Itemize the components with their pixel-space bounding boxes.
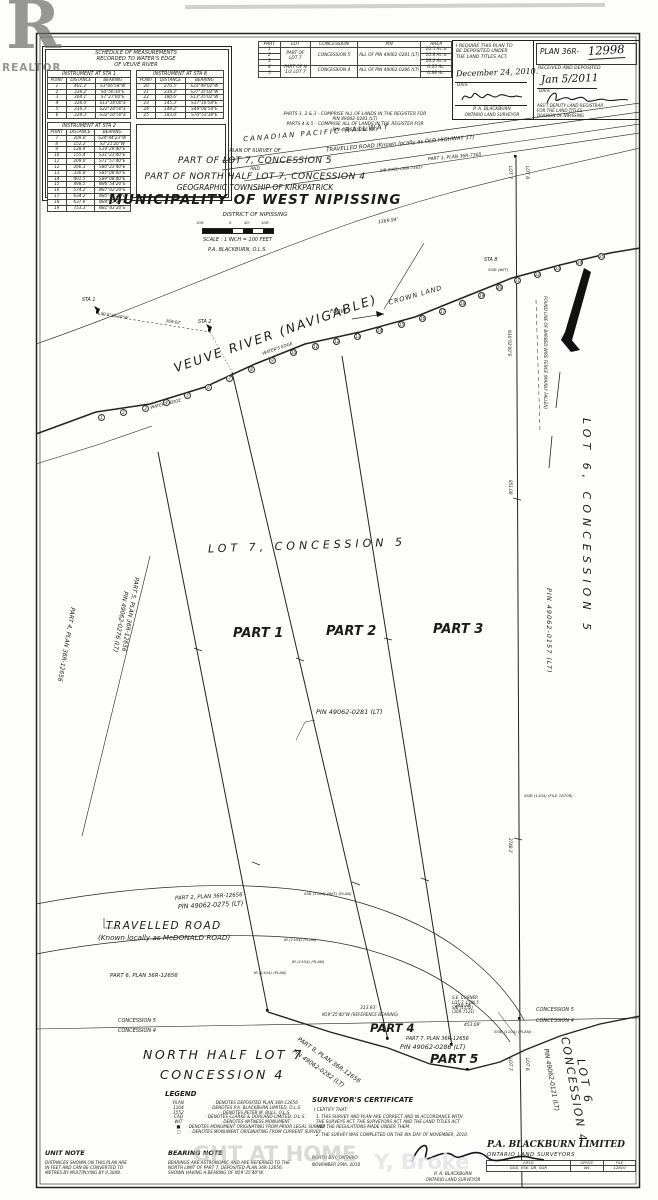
surveyor-signature (460, 88, 524, 104)
schedule-sta2-title: INSTRUMENT AT STA 2 (47, 122, 131, 129)
mcdonald-road-label: (Known locally as McDONALD ROAD) (98, 934, 230, 942)
title-line-1: PLAN OF SURVEY OF (55, 149, 455, 155)
part5-label: PART 5 (430, 1052, 478, 1067)
part2-label: PART 2 (326, 624, 376, 639)
part-pin: ALL OF PIN 49062-0286 (LT) (357, 65, 421, 77)
part-concession: CONCESSION 5 (311, 48, 358, 66)
table-cell: - DENOTES MONUMENT ORIGINATING FROM CURR… (185, 1130, 326, 1135)
table-cell: 25 (137, 112, 156, 118)
lot7-tick-label: LOT 7 (507, 166, 512, 179)
title-line-2: PART OF LOT 7, CONCESSION 5 (55, 156, 455, 167)
certificate-body: 1. THIS SURVEY AND PLAN ARE CORRECT AND … (316, 1115, 468, 1138)
scale-text: SCALE : 1 INCH = 100 FEET (175, 238, 300, 244)
part7-plan-label: PART 7, PLAN 36R-12656 (406, 1037, 469, 1043)
station-2-label: STA 2 (198, 320, 211, 326)
table-cell: □ (172, 1130, 185, 1135)
certificate-surveyor-role: ONTARIO LAND SURVEYOR (408, 1178, 498, 1183)
distance-label: 453.09' (464, 1023, 481, 1028)
title-surveyor-name: P.A. BLACKBURN, O.L.S. (175, 248, 300, 254)
part-concession: CONCESSION 4 (311, 65, 358, 77)
certificate-intro: I CERTIFY THAT: (314, 1108, 348, 1113)
station-8-label: STA 8 (484, 258, 497, 264)
rule (455, 105, 527, 106)
part-lot: PART OF LOT 7 (280, 48, 310, 66)
lot6-concession5-label: LOT 6, CONCESSION 5 (579, 418, 592, 635)
table-cell: S32°10'50"E (95, 112, 130, 118)
part-pin: ALL OF PIN 49062-0281 (LT) (357, 48, 421, 66)
pin-0281-label: PIN 49062-0281 (LT) (316, 709, 383, 717)
plan-number-handwritten: 12998 (588, 43, 625, 59)
table-cell: 12810 (603, 1166, 635, 1171)
part-area: 0.88 Ac. (421, 71, 452, 77)
plan-number-prefix: PLAN 36R- (540, 48, 579, 57)
received-deposited-label: RECEIVED AND DEPOSITED (538, 66, 601, 71)
monument-note: SSIB (1104) (PLAN) (494, 1030, 531, 1035)
scale-bar-segment (263, 229, 273, 233)
se-corner-line: (36R-7121) (452, 1010, 479, 1015)
certificate-line: AND THE REGULATIONS MADE UNDER THEM. (316, 1125, 468, 1130)
watermark-text: GHT AT HOME (193, 1142, 356, 1166)
waters-edge-line (36, 248, 640, 434)
bearing-label: N10°02'00"E (506, 330, 511, 356)
reference-bearing-label: N59°25'40"W (REFERENCE BEARING) (322, 1013, 398, 1018)
part-number: 5 (259, 71, 281, 77)
part6-plan-label: PART 6, PLAN 36R-12656 (110, 973, 178, 979)
table-row: 6324.3'S32°10'50"E (48, 112, 131, 118)
scale-bar-segment (203, 229, 233, 233)
table-cell: S70°51'38"E (185, 112, 223, 118)
table-row: □- DENOTES MONUMENT ORIGINATING FROM CUR… (172, 1130, 326, 1135)
part1-label: PART 1 (233, 626, 283, 641)
monument-note: IB (1104) (PLAN) (284, 938, 316, 943)
watermark-text: Y, Broke (374, 1150, 469, 1174)
station-1-label: STA 1 (82, 298, 95, 304)
north-half-lot7-label: NORTH HALF LOT 7 (143, 1048, 304, 1063)
fence-note: FOUND LINE OF BARBED WIRE FENCE (MAINLY … (542, 296, 547, 409)
surveyor-certificate-title: SURVEYOR'S CERTIFICATE (312, 1096, 413, 1104)
lot6-tick-label: LOT 6 (524, 166, 529, 179)
unit-note-title: UNIT NOTE (45, 1150, 85, 1158)
flow-label: FLOW (330, 309, 346, 316)
scale-bar-segment (243, 229, 253, 233)
realtor-logo-letter: R (6, 0, 61, 64)
registrar-signature (545, 90, 631, 106)
table-cell: 183.0' (156, 112, 185, 118)
municipality-title: MUNICIPALITY OF WEST NIPISSING (55, 193, 455, 209)
distance-label: 2748.1' (507, 838, 512, 853)
registrar-role-line: DIVISION OF NIPISSING (537, 114, 603, 119)
table-row: 25183.0'S70°51'38"E (137, 112, 224, 118)
scale-bar-segment (253, 229, 263, 233)
distance-label: 313.93' (360, 1006, 377, 1011)
certificate-divider (533, 41, 534, 119)
table-cell: 6 (48, 112, 67, 118)
ssib-file-note: SSIB (1104) (FILE 18706) (524, 794, 573, 799)
monument-note: IB (1104) (PLAN) (254, 971, 286, 976)
monument-note: IB (1104) (PLAN) (292, 960, 324, 965)
survey-plan-page: SCHEDULE OF MEASUREMENTS RECORDED TO WAT… (0, 0, 658, 1200)
realtor-logo-caption: REALTOR (2, 62, 62, 74)
concession5-left-label: CONCESSION 5 (118, 1019, 156, 1025)
scale-bar-segment (233, 229, 243, 233)
scale-tick: 50' (244, 221, 250, 225)
part3-label: PART 3 (433, 622, 483, 637)
lot7-tick-label: LOT 7 (507, 1058, 512, 1071)
concession5-right-label: CONCESSION 5 (536, 1008, 574, 1014)
unit-note-text: DISTANCES SHOWN ON THIS PLAN ARE IN FEET… (45, 1161, 127, 1176)
schedule-table-sta8: INSTRUMENT AT STA 8 POINT DISTANCE BEARI… (136, 70, 224, 119)
legend-title: LEGEND (165, 1090, 196, 1098)
district-label: DISTRICT OF NIPISSING (55, 212, 455, 219)
received-date-handwritten: Jan 5/2011 (541, 72, 599, 86)
realtor-logo-watermark: R REALTOR (0, 0, 84, 96)
scale-tick: 100' (196, 221, 204, 225)
distance-label: 851.08' (507, 480, 512, 495)
concession4-right-label: CONCESSION 4 (536, 1019, 574, 1025)
bearing-note-line: SHOWN HAVING A BEARING OF N59°25'40"W. (168, 1171, 290, 1176)
scale-bar (202, 228, 274, 234)
schedule-sta8-title: INSTRUMENT AT STA 8 (136, 70, 224, 77)
monument-note: SSB (1104) (WIT) (PLAN) (304, 892, 352, 897)
table-cell: WL (570, 1166, 603, 1171)
registrar-role: ASS'T DEPUTY LAND REGISTRAR FOR THE LAND… (537, 104, 603, 118)
scale-tick: 0 (229, 221, 231, 225)
distance-label: 240.74' (455, 1004, 472, 1009)
scale-tick: 100' (261, 221, 269, 225)
ssib-wit-note: SSIB (WIT) (488, 268, 508, 273)
unit-note-line: METRES BY MULTIPLYING BY 0.3048. (45, 1171, 127, 1176)
parts-table: PART LOT CONCESSION PIN AREA 1 PART OF L… (258, 41, 452, 78)
north-half-concession4-label: CONCESSION 4 (160, 1068, 285, 1083)
travelled-road-bottom-label: TRAVELLED ROAD (106, 920, 222, 932)
legend-list: PLAN- DENOTES DEPOSITED PLAN 36R-1265611… (172, 1101, 326, 1135)
deposit-statement: I REQUIRE THIS PLAN TO BE DEPOSITED UNDE… (456, 44, 513, 60)
pin-0157-label: PIN 49062-0157 (LT) (544, 588, 552, 674)
concession4-left-label: CONCESSION 4 (118, 1029, 156, 1035)
deposit-line: THE LAND TITLES ACT. (456, 55, 513, 60)
part-lot: PART OF N 1/2 LOT 7 (280, 65, 310, 77)
table-cell: 324.3' (66, 112, 95, 118)
lot6-tick-label: LOT 6 (524, 1058, 529, 1071)
part4-label: PART 4 (370, 1022, 414, 1036)
surveyor-role: ONTARIO LAND SURVEYOR (452, 113, 532, 118)
title-line-4: PART OF NORTH HALF LOT 7, CONCESSION 4 (55, 172, 455, 183)
